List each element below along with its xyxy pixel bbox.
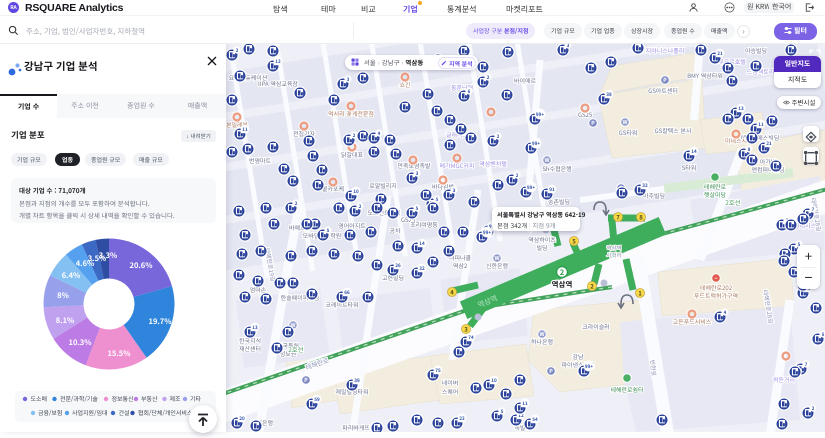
svg-text:제조: 제조 bbox=[170, 394, 182, 403]
svg-text:2호선: 2호선 bbox=[288, 344, 304, 354]
svg-text:10.3%: 10.3% bbox=[69, 337, 92, 348]
svg-text:2: 2 bbox=[516, 173, 519, 179]
svg-text:IIPA 역삼교육장: IIPA 역삼교육장 bbox=[258, 79, 298, 88]
svg-text:P: P bbox=[663, 76, 667, 84]
svg-text:기타: 기타 bbox=[190, 394, 202, 403]
svg-text:7: 7 bbox=[812, 207, 815, 213]
svg-text:역삼2: 역삼2 bbox=[453, 261, 468, 270]
svg-text:99+: 99+ bbox=[536, 112, 544, 118]
svg-text:5: 5 bbox=[572, 237, 576, 246]
svg-text:협회/단체/개인서비스: 협회/단체/개인서비스 bbox=[138, 408, 193, 417]
svg-text:5: 5 bbox=[327, 228, 330, 234]
svg-text:2: 2 bbox=[487, 75, 490, 81]
svg-text:11: 11 bbox=[242, 127, 248, 133]
svg-text:3: 3 bbox=[416, 171, 419, 177]
svg-text:사거리: 사거리 bbox=[606, 251, 621, 259]
svg-text:3: 3 bbox=[464, 325, 468, 334]
svg-text:38: 38 bbox=[606, 92, 612, 98]
svg-text:13: 13 bbox=[252, 325, 258, 331]
svg-text:테헤란로쉼터: 테헤란로쉼터 bbox=[610, 385, 643, 394]
svg-text:14: 14 bbox=[419, 241, 425, 247]
svg-text:공차: 공차 bbox=[389, 226, 401, 235]
svg-text:W: W bbox=[494, 254, 499, 262]
svg-text:14: 14 bbox=[691, 149, 697, 155]
svg-text:P: P bbox=[304, 376, 308, 384]
svg-text:3.3%: 3.3% bbox=[99, 250, 118, 261]
svg-text:정보통신: 정보통신 bbox=[112, 394, 134, 403]
svg-text:S타워: S타워 bbox=[682, 163, 697, 172]
svg-text:빈현로: 빈현로 bbox=[648, 359, 659, 377]
svg-text:7: 7 bbox=[805, 362, 808, 368]
svg-text:66: 66 bbox=[344, 290, 350, 296]
svg-text:15.5%: 15.5% bbox=[108, 348, 131, 359]
svg-text:8: 8 bbox=[639, 213, 643, 222]
svg-text:2: 2 bbox=[560, 267, 565, 278]
svg-text:P: P bbox=[549, 367, 553, 375]
svg-text:로얄빌리지: 로얄빌리지 bbox=[369, 181, 397, 190]
svg-text:6.4%: 6.4% bbox=[62, 270, 81, 281]
svg-text:건설: 건설 bbox=[119, 408, 130, 417]
svg-text:2: 2 bbox=[359, 204, 362, 210]
svg-text:사업지원/임대: 사업지원/임대 bbox=[72, 408, 107, 417]
svg-text:GS칼텍스 본사: GS칼텍스 본사 bbox=[655, 126, 692, 135]
svg-text:59: 59 bbox=[314, 397, 320, 403]
svg-text:2: 2 bbox=[295, 201, 298, 207]
svg-text:지아니스나폴리: 지아니스나폴리 bbox=[646, 46, 685, 55]
svg-text:네이버: 네이버 bbox=[442, 378, 459, 387]
svg-text:바이에르: 바이에르 bbox=[514, 76, 537, 85]
svg-text:32: 32 bbox=[642, 183, 648, 189]
svg-text:재산센터: 재산센터 bbox=[239, 344, 261, 353]
svg-text:99+: 99+ bbox=[483, 230, 491, 236]
svg-text:금융/보험: 금융/보험 bbox=[38, 408, 62, 417]
svg-text:부동산: 부동산 bbox=[141, 394, 158, 403]
svg-text:4: 4 bbox=[724, 310, 727, 316]
svg-text:99+: 99+ bbox=[527, 185, 535, 191]
svg-text:2: 2 bbox=[812, 406, 815, 412]
svg-text:3: 3 bbox=[347, 77, 350, 83]
svg-text:GS아트센터: GS아트센터 bbox=[648, 86, 678, 95]
svg-text:21: 21 bbox=[766, 141, 772, 147]
svg-text:3: 3 bbox=[567, 44, 570, 49]
svg-text:99+: 99+ bbox=[532, 141, 540, 147]
svg-text:전문/과학/기술: 전문/과학/기술 bbox=[60, 394, 98, 403]
svg-text:5: 5 bbox=[501, 409, 504, 415]
svg-text:11: 11 bbox=[522, 401, 528, 407]
svg-text:빌딩: 빌딩 bbox=[536, 243, 547, 252]
svg-text:4: 4 bbox=[378, 131, 381, 137]
svg-text:역삼역: 역삼역 bbox=[552, 279, 573, 290]
svg-text:54: 54 bbox=[532, 417, 538, 423]
svg-text:12: 12 bbox=[275, 59, 281, 65]
svg-text:아승빌딩: 아승빌딩 bbox=[745, 46, 767, 55]
svg-text:번영마트: 번영마트 bbox=[249, 156, 272, 165]
svg-text:19.7%: 19.7% bbox=[149, 316, 172, 327]
svg-text:P: P bbox=[591, 119, 595, 127]
svg-text:39: 39 bbox=[354, 378, 360, 384]
svg-text:8: 8 bbox=[748, 147, 751, 153]
svg-text:10: 10 bbox=[353, 189, 359, 195]
svg-text:6: 6 bbox=[468, 89, 471, 95]
svg-text:2: 2 bbox=[590, 282, 594, 291]
svg-text:3: 3 bbox=[453, 188, 456, 194]
svg-text:5: 5 bbox=[822, 332, 825, 338]
svg-text:조리여명동: 조리여명동 bbox=[410, 220, 438, 229]
svg-text:역삼벤처텔: 역삼벤처텔 bbox=[479, 159, 507, 168]
svg-text:영어아지트: 영어아지트 bbox=[338, 221, 366, 230]
svg-text:BMY 역삼타워: BMY 역삼타워 bbox=[687, 71, 723, 80]
svg-text:햇살마당: 햇살마당 bbox=[704, 190, 727, 199]
svg-text:99+: 99+ bbox=[585, 364, 593, 370]
svg-text:20: 20 bbox=[239, 416, 245, 422]
svg-text:5: 5 bbox=[416, 206, 419, 212]
svg-text:10: 10 bbox=[491, 378, 497, 384]
svg-text:1: 1 bbox=[638, 289, 642, 298]
svg-text:W: W bbox=[622, 118, 627, 126]
svg-text:−: − bbox=[714, 274, 717, 282]
svg-text:7: 7 bbox=[616, 213, 620, 222]
svg-text:W: W bbox=[539, 330, 544, 338]
svg-text:2: 2 bbox=[353, 133, 356, 139]
svg-text:11: 11 bbox=[758, 122, 764, 128]
svg-text:74: 74 bbox=[468, 335, 474, 341]
svg-text:파리바게뜨: 파리바게뜨 bbox=[342, 423, 370, 432]
svg-text:스퀘어: 스퀘어 bbox=[442, 387, 459, 396]
svg-text:8.1%: 8.1% bbox=[56, 315, 75, 326]
svg-text:4: 4 bbox=[450, 288, 454, 297]
svg-text:Sh수협은행: Sh수협은행 bbox=[542, 164, 571, 173]
svg-text:W: W bbox=[544, 156, 549, 164]
svg-text:21: 21 bbox=[717, 51, 723, 57]
svg-text:32: 32 bbox=[419, 266, 425, 272]
svg-text:26: 26 bbox=[395, 263, 401, 269]
svg-text:푸드트럭허가구역: 푸드트럭허가구역 bbox=[694, 291, 738, 300]
svg-text:GS타워: GS타워 bbox=[619, 128, 638, 137]
svg-text:2: 2 bbox=[236, 48, 239, 54]
svg-text:2호선: 2호선 bbox=[725, 197, 741, 207]
svg-text:13: 13 bbox=[738, 106, 744, 112]
svg-text:91: 91 bbox=[549, 187, 555, 193]
svg-text:22: 22 bbox=[459, 416, 465, 422]
svg-text:8%: 8% bbox=[57, 290, 69, 301]
svg-text:도소매: 도소매 bbox=[31, 394, 48, 403]
svg-text:2: 2 bbox=[497, 134, 500, 140]
svg-text:5: 5 bbox=[436, 197, 439, 203]
svg-text:크라이슬러: 크라이슬러 bbox=[582, 322, 610, 331]
svg-text:20.6%: 20.6% bbox=[130, 260, 153, 271]
svg-text:75: 75 bbox=[435, 368, 441, 374]
